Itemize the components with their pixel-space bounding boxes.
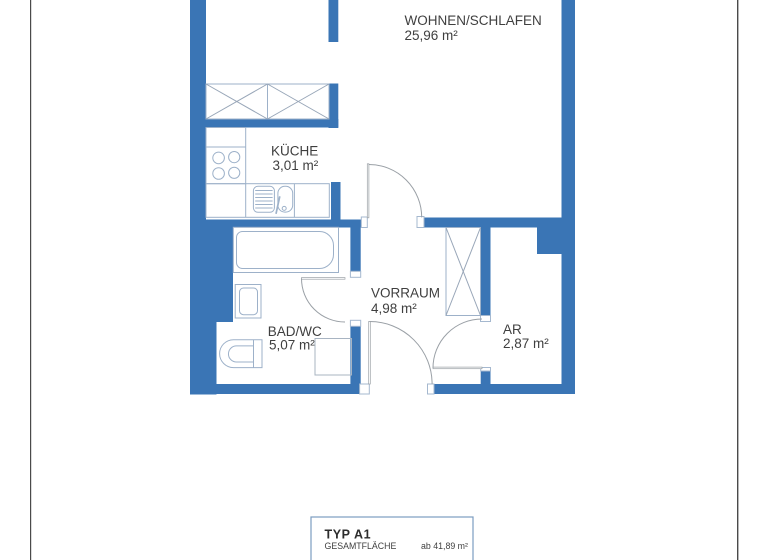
svg-text:25,96 m²: 25,96 m² (405, 28, 459, 43)
svg-text:3,01 m²: 3,01 m² (273, 158, 319, 173)
svg-text:GESAMTFLÄCHE: GESAMTFLÄCHE (325, 541, 397, 551)
svg-text:2,87 m²: 2,87 m² (503, 336, 549, 351)
svg-text:TYP A1: TYP A1 (325, 528, 372, 542)
svg-text:KÜCHE: KÜCHE (271, 143, 318, 158)
svg-text:ab 41,89 m²: ab 41,89 m² (421, 541, 468, 551)
svg-text:AR: AR (503, 322, 522, 337)
svg-text:WOHNEN/SCHLAFEN: WOHNEN/SCHLAFEN (405, 13, 542, 28)
svg-text:4,98 m²: 4,98 m² (371, 301, 417, 316)
svg-text:5,07 m²: 5,07 m² (269, 338, 315, 353)
svg-text:VORRAUM: VORRAUM (371, 285, 440, 300)
